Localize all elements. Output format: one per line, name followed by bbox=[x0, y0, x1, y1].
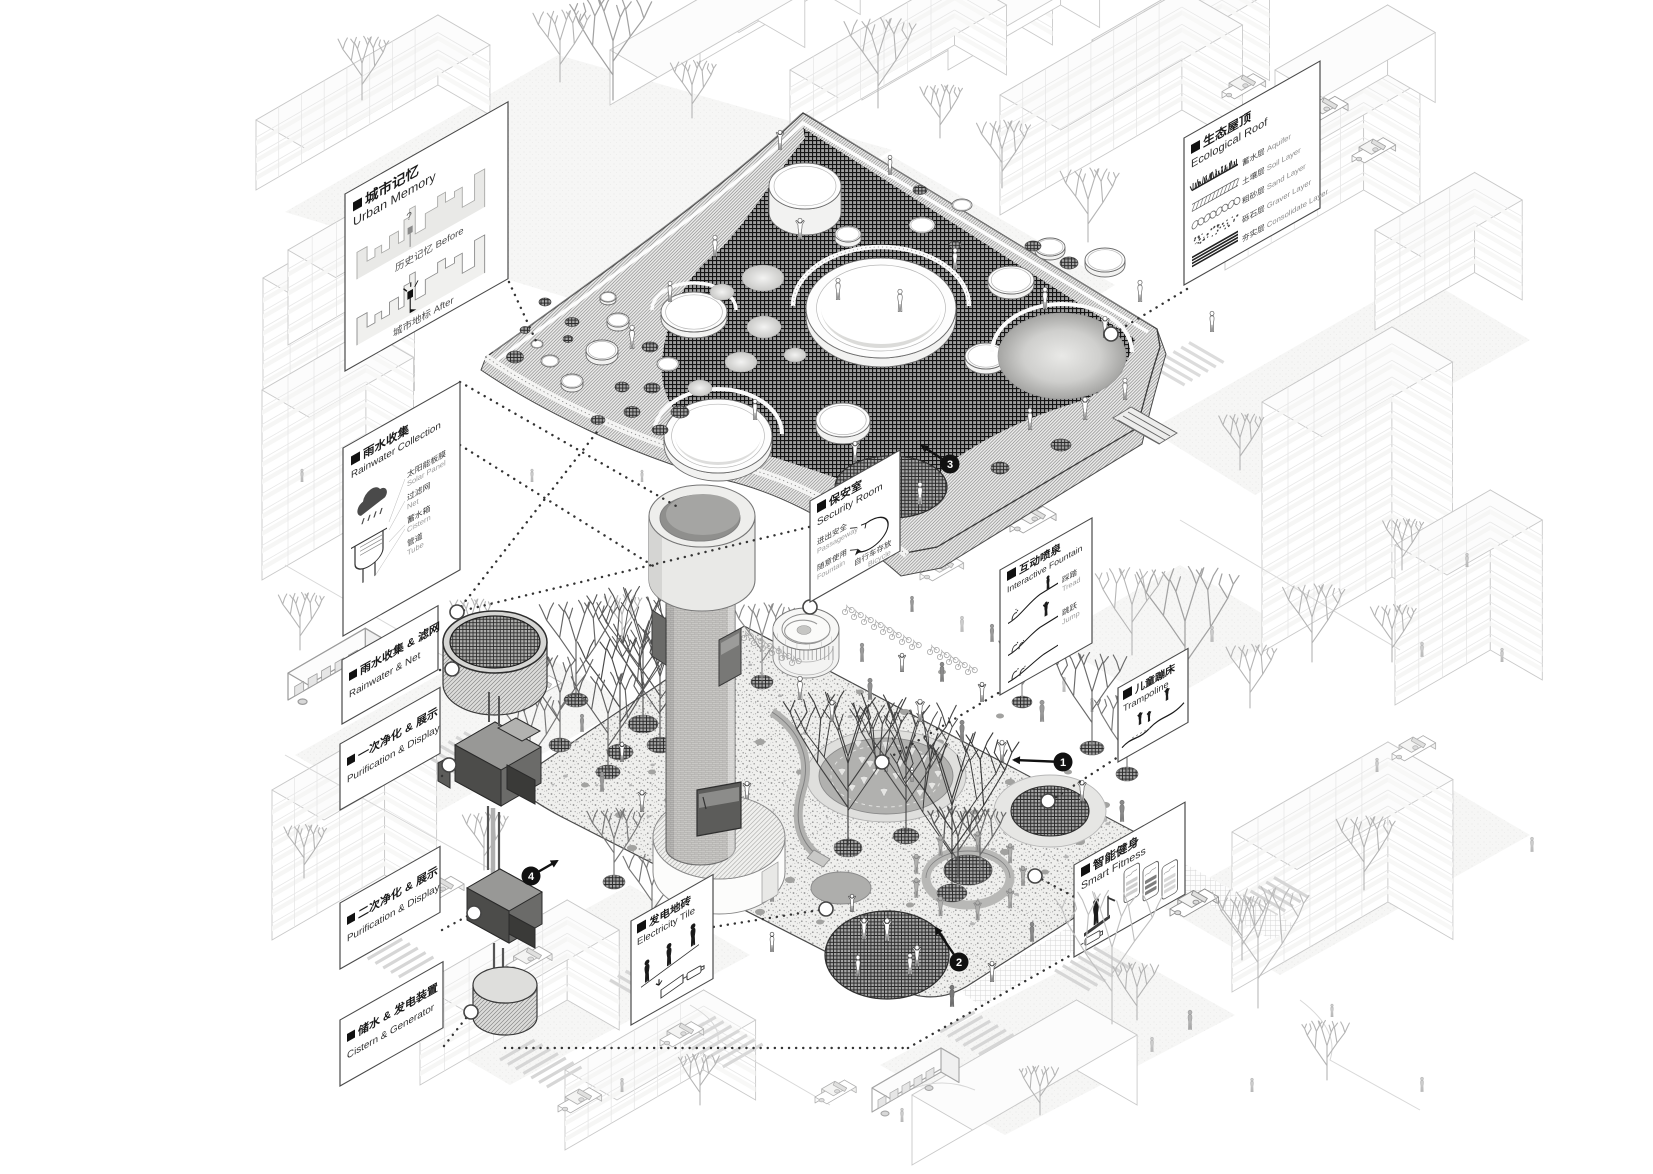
svg-text:3: 3 bbox=[947, 459, 953, 471]
svg-text:2: 2 bbox=[956, 957, 962, 969]
svg-text:4: 4 bbox=[528, 871, 535, 883]
svg-text:1: 1 bbox=[1060, 757, 1066, 769]
